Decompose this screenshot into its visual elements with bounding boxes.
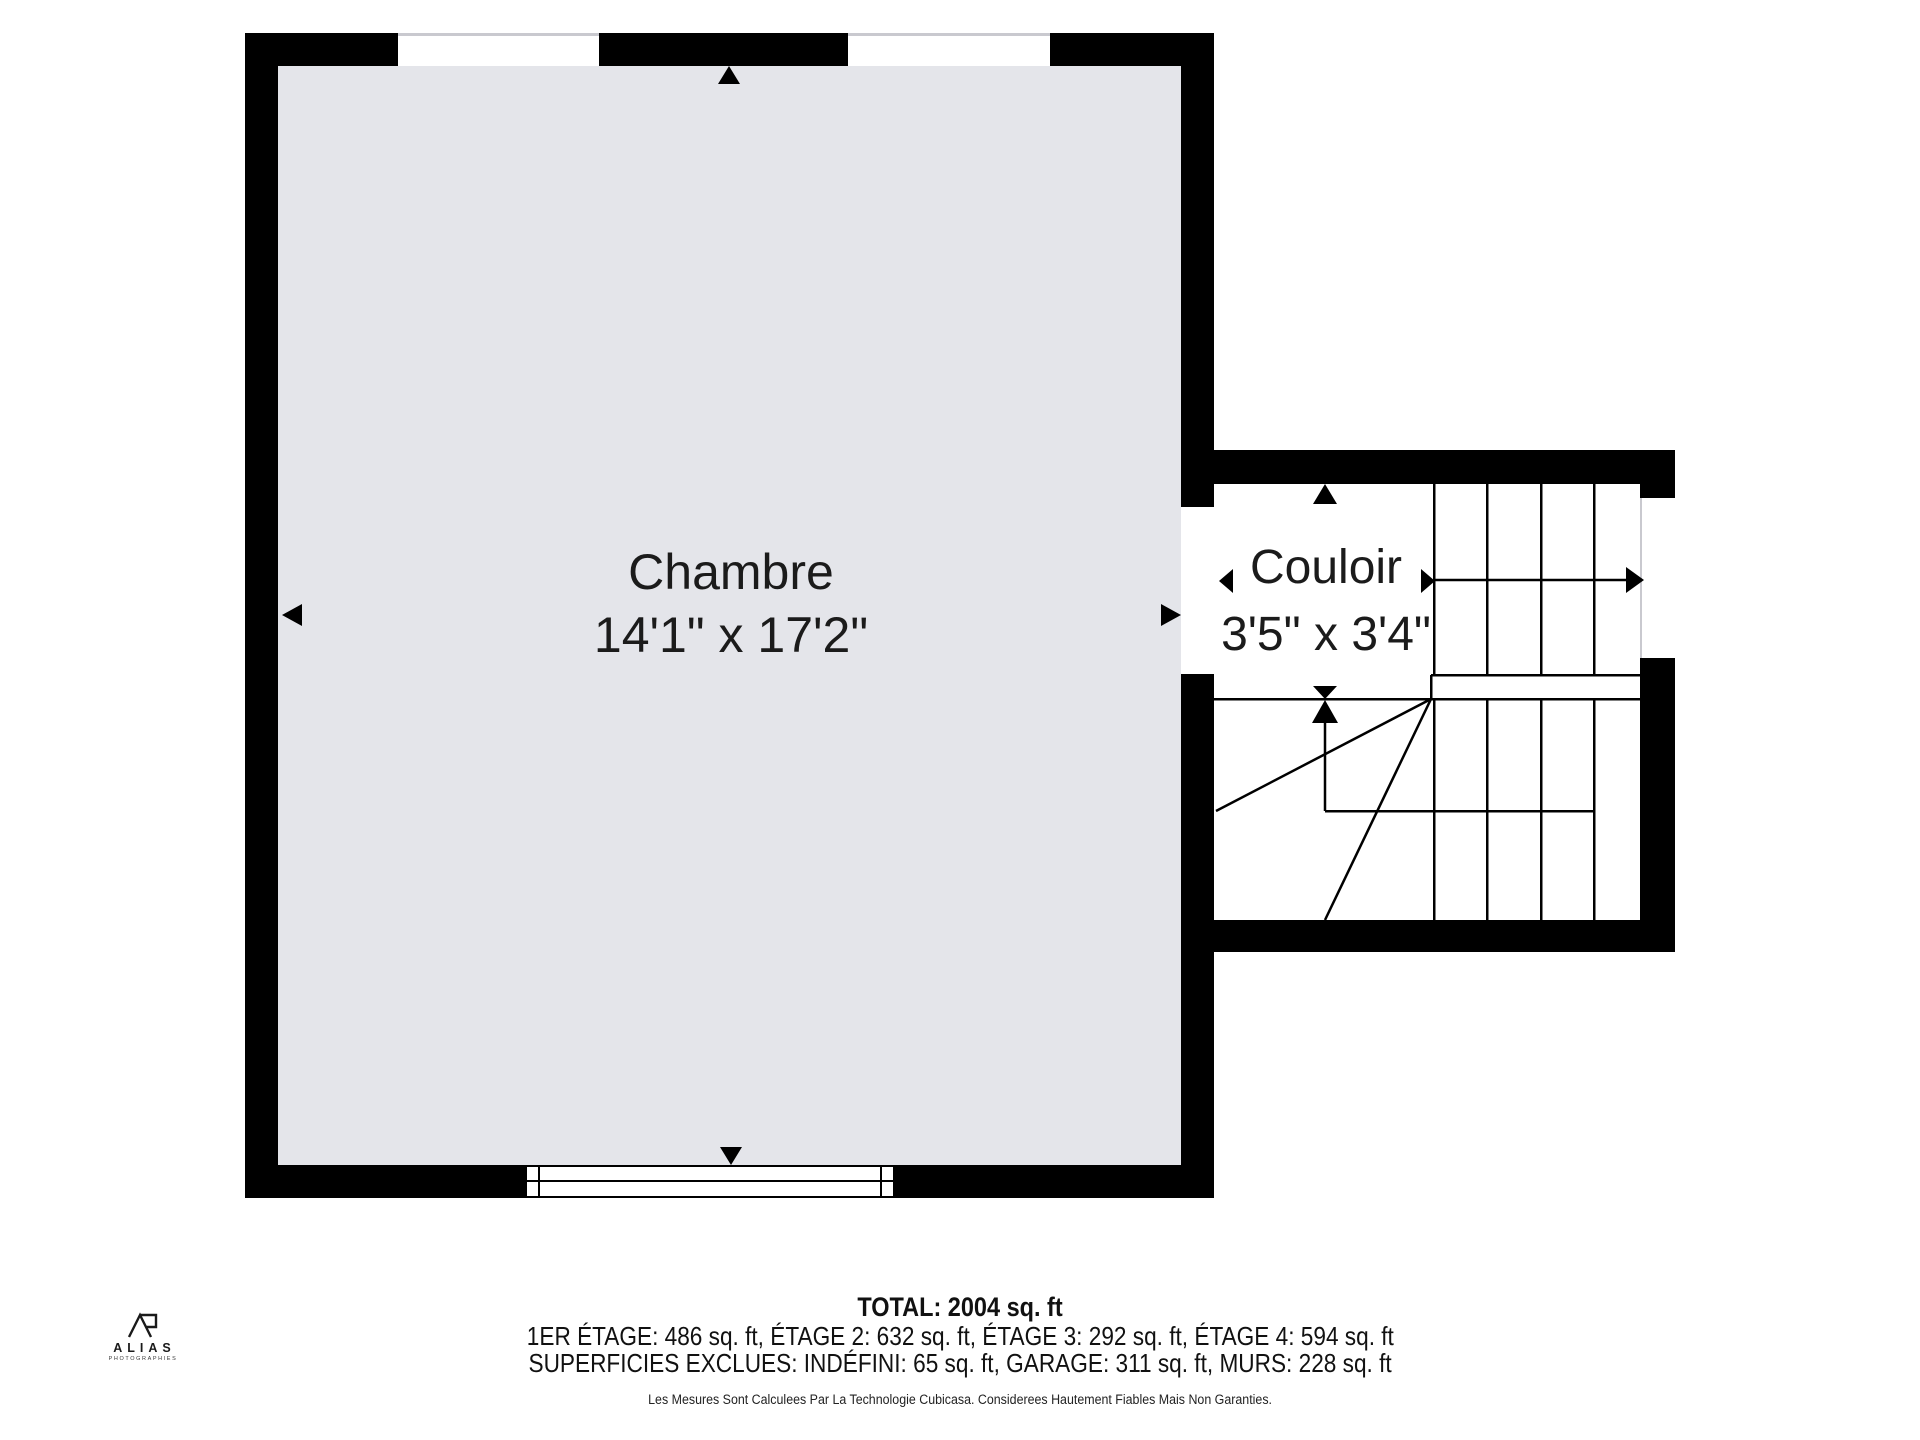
sliding-door-jamb-right bbox=[880, 1167, 882, 1196]
floorplan-canvas: Chambre 14'1" x 17'2" Couloir 3'5" x 3'4… bbox=[0, 0, 1920, 1440]
room-label-couloir: Couloir 3'5" x 3'4" bbox=[1104, 534, 1548, 668]
area-summary: TOTAL: 2004 sq. ft 1ER ÉTAGE: 486 sq. ft… bbox=[0, 1292, 1920, 1377]
marker-down-icon bbox=[1313, 686, 1337, 699]
room-label-chambre: Chambre 14'1" x 17'2" bbox=[281, 541, 1181, 667]
stair-landing bbox=[1214, 675, 1640, 699]
ap-monogram-icon bbox=[124, 1312, 160, 1338]
logo-name: ALIAS bbox=[90, 1341, 194, 1355]
sliding-door bbox=[525, 1165, 895, 1198]
sliding-door-track bbox=[527, 1180, 893, 1182]
stair-direction-arrow-up-icon bbox=[1312, 700, 1338, 811]
stairs-and-markers-layer bbox=[0, 0, 1920, 1440]
room-name: Couloir bbox=[1104, 534, 1548, 601]
disclaimer-line: Les Mesures Sont Calculees Par La Techno… bbox=[0, 1392, 1920, 1408]
floor-areas-line: 1ER ÉTAGE: 486 sq. ft, ÉTAGE 2: 632 sq. … bbox=[0, 1322, 1920, 1350]
marker-down-icon bbox=[720, 1147, 742, 1165]
room-dimensions: 14'1" x 17'2" bbox=[281, 604, 1181, 667]
total-area-line: TOTAL: 2004 sq. ft bbox=[0, 1292, 1920, 1322]
winder-tread-lines bbox=[1216, 699, 1431, 920]
excluded-areas-line: SUPERFICIES EXCLUES: INDÉFINI: 65 sq. ft… bbox=[0, 1350, 1920, 1377]
room-dimensions: 3'5" x 3'4" bbox=[1104, 601, 1548, 668]
marker-up-icon bbox=[718, 66, 740, 84]
brand-logo: ALIAS PHOTOGRAPHIES bbox=[90, 1312, 194, 1362]
marker-up-icon bbox=[1313, 484, 1337, 504]
logo-tagline: PHOTOGRAPHIES bbox=[90, 1356, 194, 1362]
sliding-door-jamb-left bbox=[538, 1167, 540, 1196]
room-name: Chambre bbox=[281, 541, 1181, 604]
